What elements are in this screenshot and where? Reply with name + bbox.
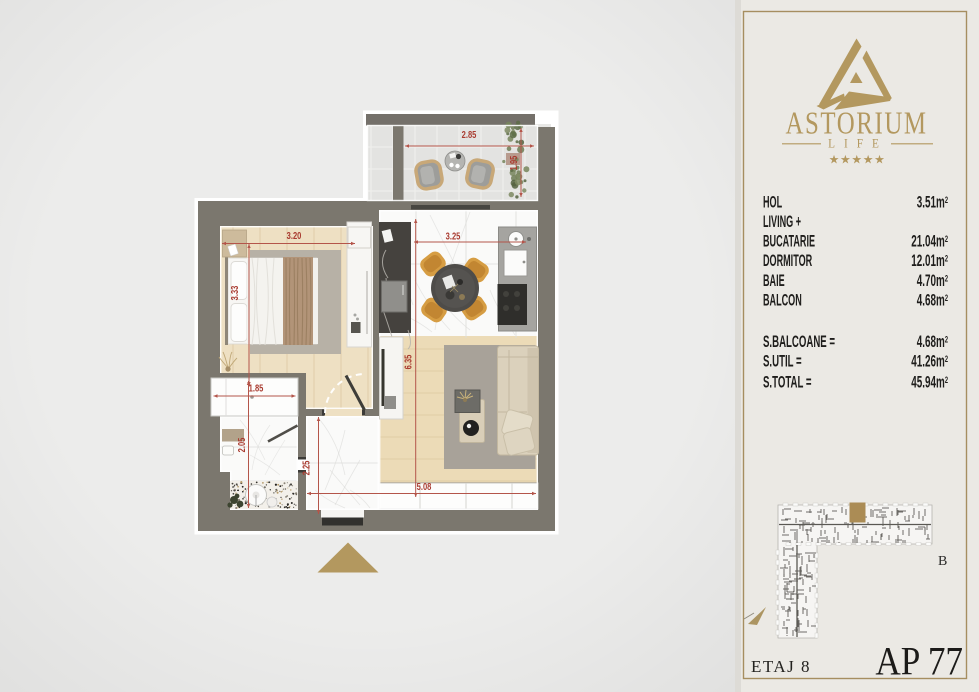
svg-text:1.95: 1.95 [508,156,519,171]
svg-text:2.05: 2.05 [236,438,247,453]
svg-text:S.BALCOANE =: S.BALCOANE = [763,332,835,350]
svg-text:B: B [938,554,947,569]
svg-text:45.94m2: 45.94m2 [911,373,948,391]
svg-text:2.25: 2.25 [300,461,311,476]
svg-text:S.UTIL =: S.UTIL = [763,352,802,370]
svg-text:21.04m2: 21.04m2 [911,232,948,250]
svg-text:HOL: HOL [763,193,782,212]
svg-text:3.25: 3.25 [446,230,461,241]
svg-text:BAIE: BAIE [763,271,785,290]
svg-text:4.68m2: 4.68m2 [917,332,949,350]
svg-text:3.33: 3.33 [229,286,240,301]
svg-text:LIVING +: LIVING + [763,212,801,231]
svg-text:BUCATARIE: BUCATARIE [763,232,815,251]
svg-text:1.85: 1.85 [249,382,264,393]
svg-text:6.35: 6.35 [402,355,413,370]
svg-text:LIFE: LIFE [828,136,888,151]
svg-text:BALCON: BALCON [763,291,802,310]
svg-text:AP 77: AP 77 [875,639,963,684]
svg-text:★★★★★: ★★★★★ [829,153,886,167]
svg-text:12.01m2: 12.01m2 [911,251,948,269]
svg-text:3.20: 3.20 [287,230,302,241]
svg-text:4.68m2: 4.68m2 [917,291,949,309]
svg-text:DORMITOR: DORMITOR [763,251,812,270]
svg-text:5.08: 5.08 [417,481,432,492]
svg-text:2.85: 2.85 [462,129,477,140]
svg-text:ETAJ 8: ETAJ 8 [751,657,811,676]
svg-text:S.TOTAL =: S.TOTAL = [763,373,812,391]
svg-text:4.70m2: 4.70m2 [917,271,949,289]
svg-text:41.26m2: 41.26m2 [911,352,948,370]
svg-text:3.51m2: 3.51m2 [917,193,949,211]
